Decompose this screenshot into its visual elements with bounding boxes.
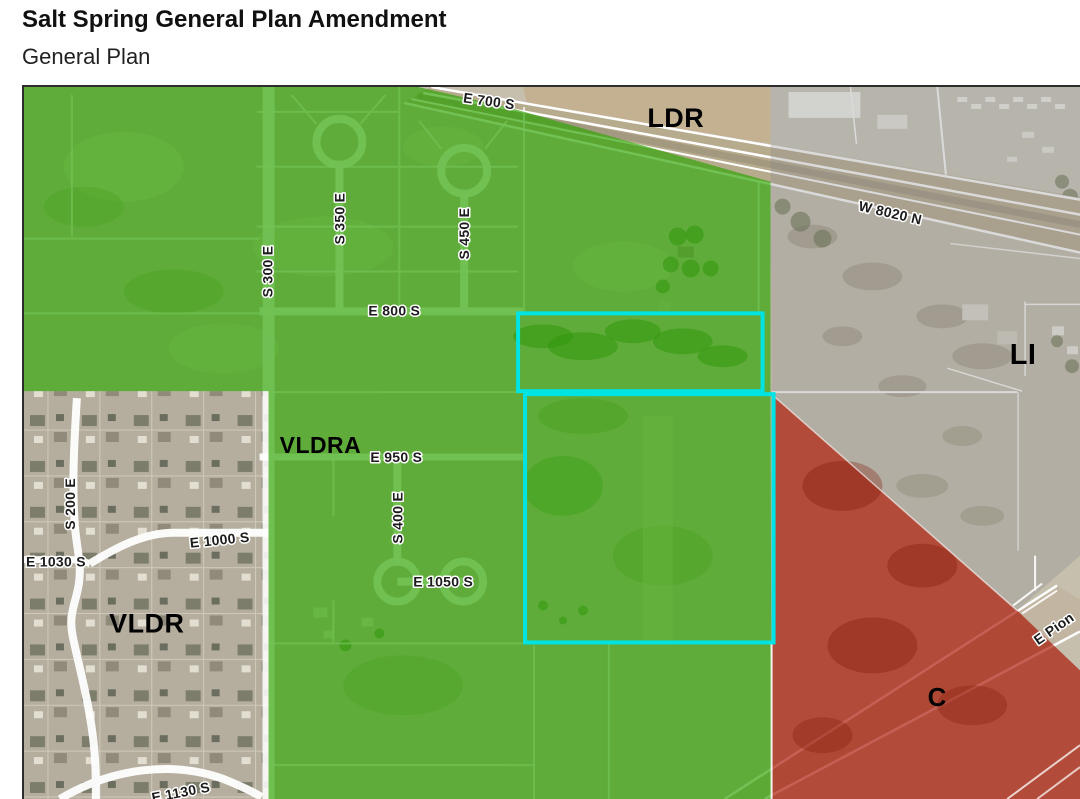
zone-label-ldr: LDR <box>647 103 704 133</box>
page-title: Salt Spring General Plan Amendment <box>22 6 447 34</box>
street-label-s-400-e: S 400 E <box>389 492 405 544</box>
zone-label-li: LI <box>1010 339 1037 371</box>
street-label-s-300-e: S 300 E <box>260 246 276 298</box>
street-label-e-800-s: E 800 S <box>368 302 420 318</box>
residential-area <box>24 391 269 799</box>
page-subtitle: General Plan <box>22 44 150 70</box>
street-label-e-950-s: E 950 S <box>370 449 422 465</box>
map-canvas: E 700 S W 8020 N S 300 E S 350 E S 450 E… <box>24 87 1080 799</box>
zone-label-c: C <box>928 684 947 712</box>
zone-label-vldr: VLDR <box>109 608 184 638</box>
zone-label-vldra: VLDRA <box>280 432 362 458</box>
street-label-s-350-e: S 350 E <box>331 193 347 245</box>
general-plan-map[interactable]: E 700 S W 8020 N S 300 E S 350 E S 450 E… <box>22 85 1080 799</box>
street-label-s-200-e: S 200 E <box>62 478 78 530</box>
street-label-e-1050-s: E 1050 S <box>413 574 473 590</box>
street-label-s-450-e: S 450 E <box>456 208 472 260</box>
street-label-e-1030-s: E 1030 S <box>26 554 86 570</box>
page: Salt Spring General Plan Amendment Gener… <box>0 0 1080 799</box>
